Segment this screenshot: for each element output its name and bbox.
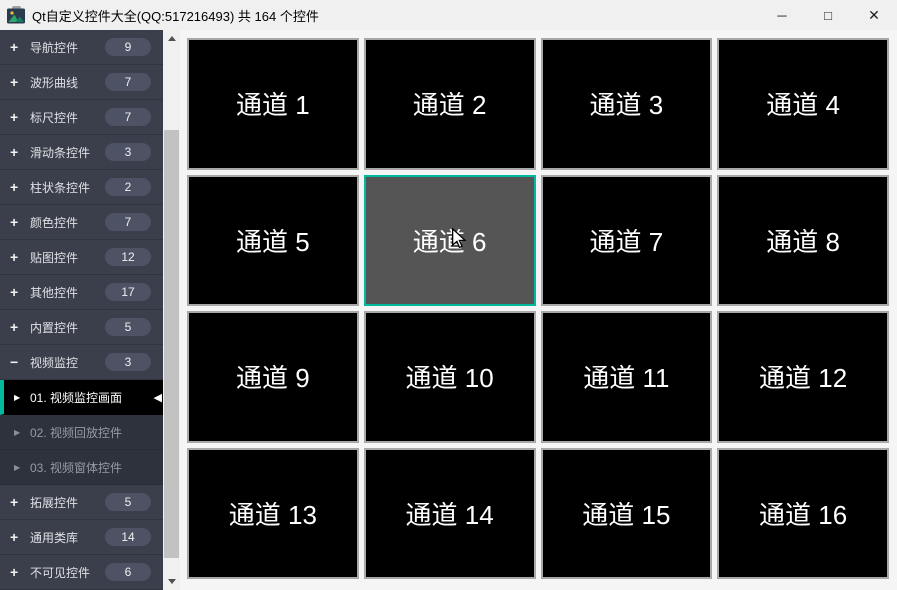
titlebar: Qt自定义控件大全(QQ:517216493) 共 164 个控件 ─ □ ✕ <box>0 0 897 30</box>
expand-plus-icon: + <box>10 319 30 335</box>
channel-cell-1[interactable]: 通道 1 <box>187 38 359 170</box>
sidebar-item-video-monitor[interactable]: − 视频监控 3 <box>0 345 163 380</box>
tree-arrow-icon: ▶ <box>14 393 30 402</box>
scrollbar-thumb[interactable] <box>164 130 179 558</box>
channel-grid: 通道 1 通道 2 通道 3 通道 4 通道 5 通道 6 通道 7 通道 8 … <box>187 38 889 579</box>
sidebar-item-nav-controls[interactable]: + 导航控件 9 <box>0 30 163 65</box>
collapse-minus-icon: − <box>10 354 30 370</box>
expand-plus-icon: + <box>10 494 30 510</box>
count-badge: 5 <box>105 493 151 511</box>
count-badge: 7 <box>105 213 151 231</box>
sidebar-item-label: 滑动条控件 <box>30 144 90 161</box>
channel-cell-7[interactable]: 通道 7 <box>541 175 713 307</box>
sidebar-item-ruler[interactable]: + 标尺控件 7 <box>0 100 163 135</box>
channel-cell-4[interactable]: 通道 4 <box>717 38 889 170</box>
sidebar-item-label: 视频监控 <box>30 354 78 371</box>
channel-cell-15[interactable]: 通道 15 <box>541 448 713 580</box>
tree-arrow-icon: ▶ <box>14 428 30 437</box>
video-monitor-panel: 通道 1 通道 2 通道 3 通道 4 通道 5 通道 6 通道 7 通道 8 … <box>180 30 897 590</box>
sidebar-item-label: 柱状条控件 <box>30 179 90 196</box>
sidebar-item-barchart[interactable]: + 柱状条控件 2 <box>0 170 163 205</box>
expand-plus-icon: + <box>10 249 30 265</box>
sidebar-item-label: 通用类库 <box>30 529 78 546</box>
tree-arrow-icon: ▶ <box>14 463 30 472</box>
channel-cell-2[interactable]: 通道 2 <box>364 38 536 170</box>
sidebar-subitem-video-monitor-screen[interactable]: ▶ 01. 视频监控画面 ◀ <box>0 380 163 415</box>
count-badge: 2 <box>105 178 151 196</box>
window-controls: ─ □ ✕ <box>759 0 897 30</box>
sidebar-item-other[interactable]: + 其他控件 17 <box>0 275 163 310</box>
minimize-button[interactable]: ─ <box>759 0 805 30</box>
expand-plus-icon: + <box>10 109 30 125</box>
channel-cell-3[interactable]: 通道 3 <box>541 38 713 170</box>
close-button[interactable]: ✕ <box>851 0 897 30</box>
count-badge: 12 <box>105 248 151 266</box>
sidebar-item-color[interactable]: + 颜色控件 7 <box>0 205 163 240</box>
count-badge: 9 <box>105 38 151 56</box>
sidebar-subitem-label: 03. 视频窗体控件 <box>30 459 122 476</box>
selected-marker-icon: ◀ <box>154 391 162 404</box>
sidebar-item-label: 导航控件 <box>30 39 78 56</box>
scroll-down-icon[interactable] <box>163 573 180 590</box>
app-window: Qt自定义控件大全(QQ:517216493) 共 164 个控件 ─ □ ✕ … <box>0 0 897 590</box>
channel-cell-5[interactable]: 通道 5 <box>187 175 359 307</box>
expand-plus-icon: + <box>10 144 30 160</box>
sidebar-item-label: 其他控件 <box>30 284 78 301</box>
scroll-up-icon[interactable] <box>163 30 180 47</box>
expand-plus-icon: + <box>10 214 30 230</box>
sidebar-item-builtin[interactable]: + 内置控件 5 <box>0 310 163 345</box>
sidebar-item-label: 颜色控件 <box>30 214 78 231</box>
sidebar-item-image[interactable]: + 贴图控件 12 <box>0 240 163 275</box>
expand-plus-icon: + <box>10 39 30 55</box>
sidebar-item-label: 标尺控件 <box>30 109 78 126</box>
channel-cell-12[interactable]: 通道 12 <box>717 311 889 443</box>
sidebar-subitem-video-window[interactable]: ▶ 03. 视频窗体控件 <box>0 450 163 485</box>
sidebar-item-label: 贴图控件 <box>30 249 78 266</box>
sidebar-item-invisible[interactable]: + 不可见控件 6 <box>0 555 163 590</box>
count-badge: 7 <box>105 73 151 91</box>
channel-cell-14[interactable]: 通道 14 <box>364 448 536 580</box>
expand-plus-icon: + <box>10 284 30 300</box>
count-badge: 3 <box>105 143 151 161</box>
count-badge: 5 <box>105 318 151 336</box>
sidebar-item-waveform[interactable]: + 波形曲线 7 <box>0 65 163 100</box>
channel-cell-6-selected[interactable]: 通道 6 <box>364 175 536 307</box>
count-badge: 7 <box>105 108 151 126</box>
channel-cell-10[interactable]: 通道 10 <box>364 311 536 443</box>
count-badge: 17 <box>105 283 151 301</box>
app-picture-icon <box>6 5 26 25</box>
sidebar-item-label: 内置控件 <box>30 319 78 336</box>
sidebar-item-label: 不可见控件 <box>30 564 90 581</box>
channel-cell-8[interactable]: 通道 8 <box>717 175 889 307</box>
sidebar: + 导航控件 9 + 波形曲线 7 + 标尺控件 7 + 滑动条控件 3 + 柱… <box>0 30 163 590</box>
expand-plus-icon: + <box>10 564 30 580</box>
count-badge: 3 <box>105 353 151 371</box>
sidebar-item-slider[interactable]: + 滑动条控件 3 <box>0 135 163 170</box>
channel-cell-16[interactable]: 通道 16 <box>717 448 889 580</box>
sidebar-item-label: 拓展控件 <box>30 494 78 511</box>
sidebar-scrollbar[interactable] <box>163 30 180 590</box>
count-badge: 14 <box>105 528 151 546</box>
expand-plus-icon: + <box>10 74 30 90</box>
window-title: Qt自定义控件大全(QQ:517216493) 共 164 个控件 <box>32 6 319 25</box>
maximize-button[interactable]: □ <box>805 0 851 30</box>
expand-plus-icon: + <box>10 529 30 545</box>
sidebar-item-extension[interactable]: + 拓展控件 5 <box>0 485 163 520</box>
sidebar-subitem-label: 02. 视频回放控件 <box>30 424 122 441</box>
channel-cell-9[interactable]: 通道 9 <box>187 311 359 443</box>
sidebar-subitem-label: 01. 视频监控画面 <box>30 389 122 406</box>
channel-cell-13[interactable]: 通道 13 <box>187 448 359 580</box>
expand-plus-icon: + <box>10 179 30 195</box>
sidebar-subitem-video-playback[interactable]: ▶ 02. 视频回放控件 <box>0 415 163 450</box>
sidebar-item-label: 波形曲线 <box>30 74 78 91</box>
channel-cell-11[interactable]: 通道 11 <box>541 311 713 443</box>
count-badge: 6 <box>105 563 151 581</box>
sidebar-item-common-lib[interactable]: + 通用类库 14 <box>0 520 163 555</box>
